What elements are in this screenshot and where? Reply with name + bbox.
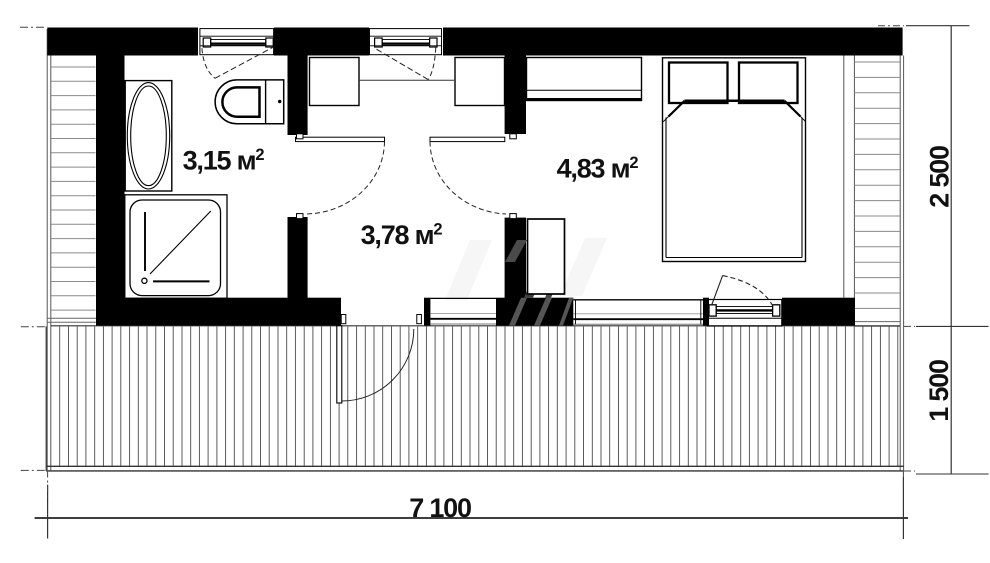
svg-text:1 500: 1 500	[924, 360, 954, 422]
svg-text:7 100: 7 100	[409, 493, 471, 523]
svg-text:2 500: 2 500	[925, 146, 955, 208]
svg-text:3,15 м2: 3,15 м2	[183, 146, 265, 176]
svg-text:3,78 м2: 3,78 м2	[361, 220, 443, 250]
svg-text:4,83 м2: 4,83 м2	[557, 154, 639, 184]
